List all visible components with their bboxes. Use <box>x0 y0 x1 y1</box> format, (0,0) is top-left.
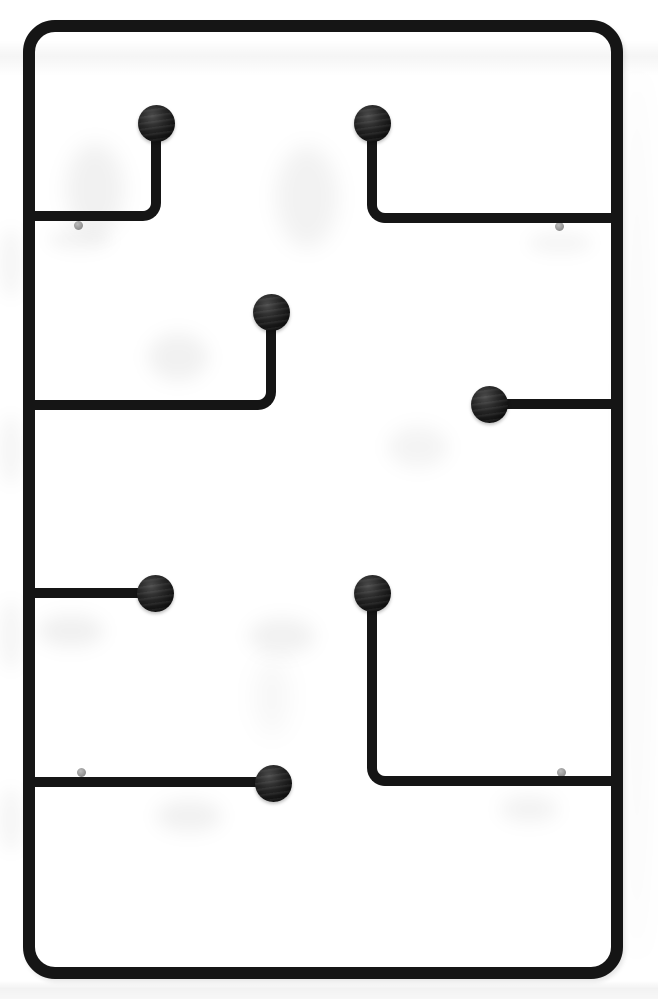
coat-rack-photo <box>0 0 658 999</box>
wall-shadow <box>0 788 22 852</box>
wall-shadow <box>624 70 650 960</box>
wall-shadow-band-bottom <box>0 981 658 999</box>
wall-shadow <box>0 228 22 298</box>
wall-shadow <box>0 415 22 485</box>
rack-frame <box>23 20 623 979</box>
wall-shadow <box>0 600 22 670</box>
